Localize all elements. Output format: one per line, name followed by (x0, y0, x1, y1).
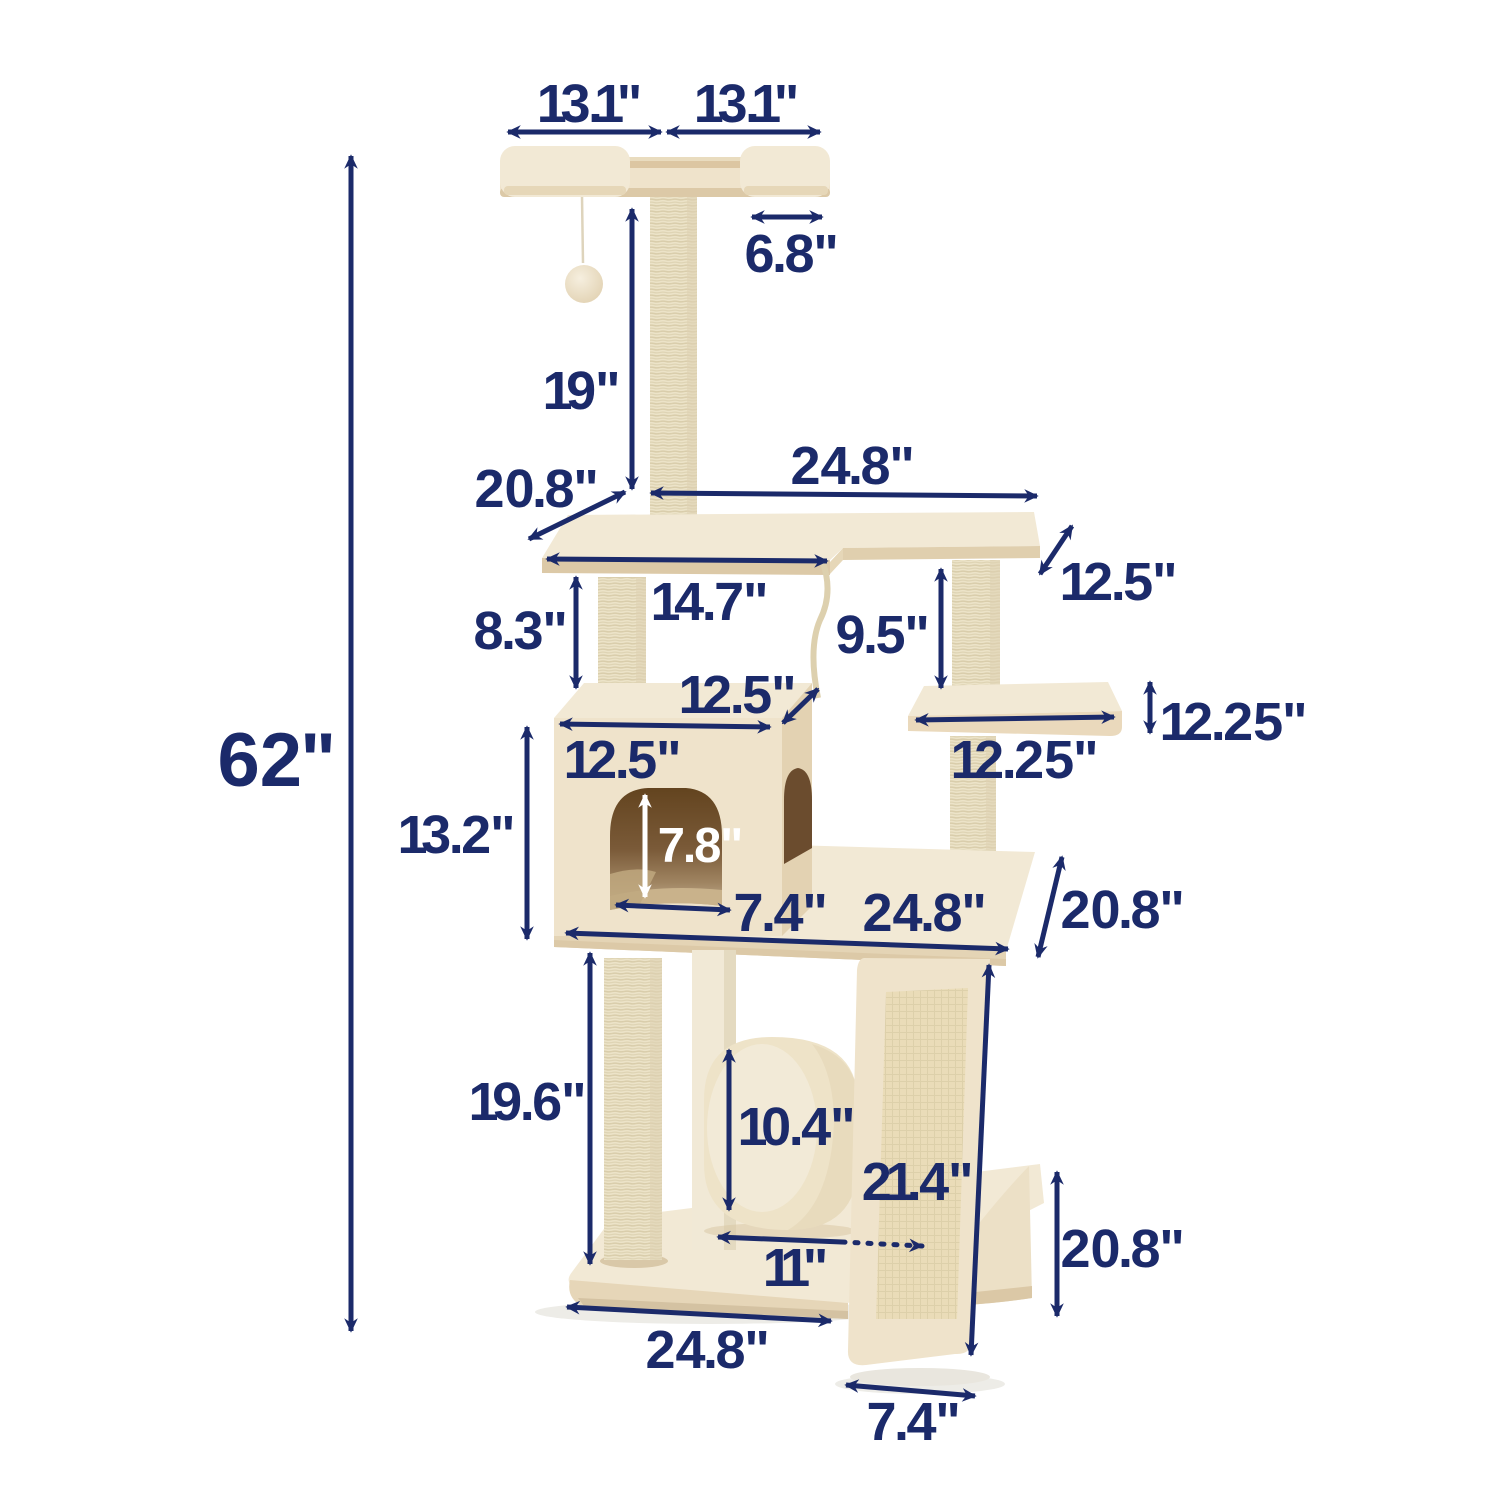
svg-text:12.5": 12.5" (563, 730, 681, 790)
svg-text:10.4": 10.4" (737, 1097, 855, 1157)
svg-text:13.1": 13.1" (694, 74, 800, 134)
svg-text:13.1": 13.1" (537, 74, 643, 134)
svg-text:19.6": 19.6" (468, 1072, 586, 1132)
svg-text:7.4": 7.4" (866, 1392, 960, 1452)
svg-text:6.8": 6.8" (744, 224, 838, 284)
svg-text:20.8": 20.8" (474, 459, 598, 519)
svg-text:8.3": 8.3" (473, 601, 567, 661)
svg-text:21.4": 21.4" (862, 1152, 974, 1212)
svg-text:12.5": 12.5" (1059, 552, 1177, 612)
svg-text:7.8": 7.8" (658, 819, 744, 873)
svg-text:62": 62" (218, 718, 337, 803)
svg-text:24.8": 24.8" (862, 883, 986, 943)
svg-text:24.8": 24.8" (645, 1320, 769, 1380)
svg-text:19": 19" (542, 361, 620, 421)
svg-text:20.8": 20.8" (1060, 1219, 1184, 1279)
svg-text:20.8": 20.8" (1060, 880, 1184, 940)
svg-text:11": 11" (763, 1238, 829, 1298)
svg-text:12.25": 12.25" (950, 730, 1098, 790)
svg-text:14.7": 14.7" (650, 572, 768, 632)
svg-text:9.5": 9.5" (835, 605, 929, 665)
svg-text:13.2": 13.2" (397, 805, 515, 865)
svg-text:24.8": 24.8" (790, 436, 914, 496)
svg-text:12.5": 12.5" (678, 665, 796, 725)
svg-text:12.25": 12.25" (1159, 692, 1307, 752)
svg-text:7.4": 7.4" (733, 883, 827, 943)
